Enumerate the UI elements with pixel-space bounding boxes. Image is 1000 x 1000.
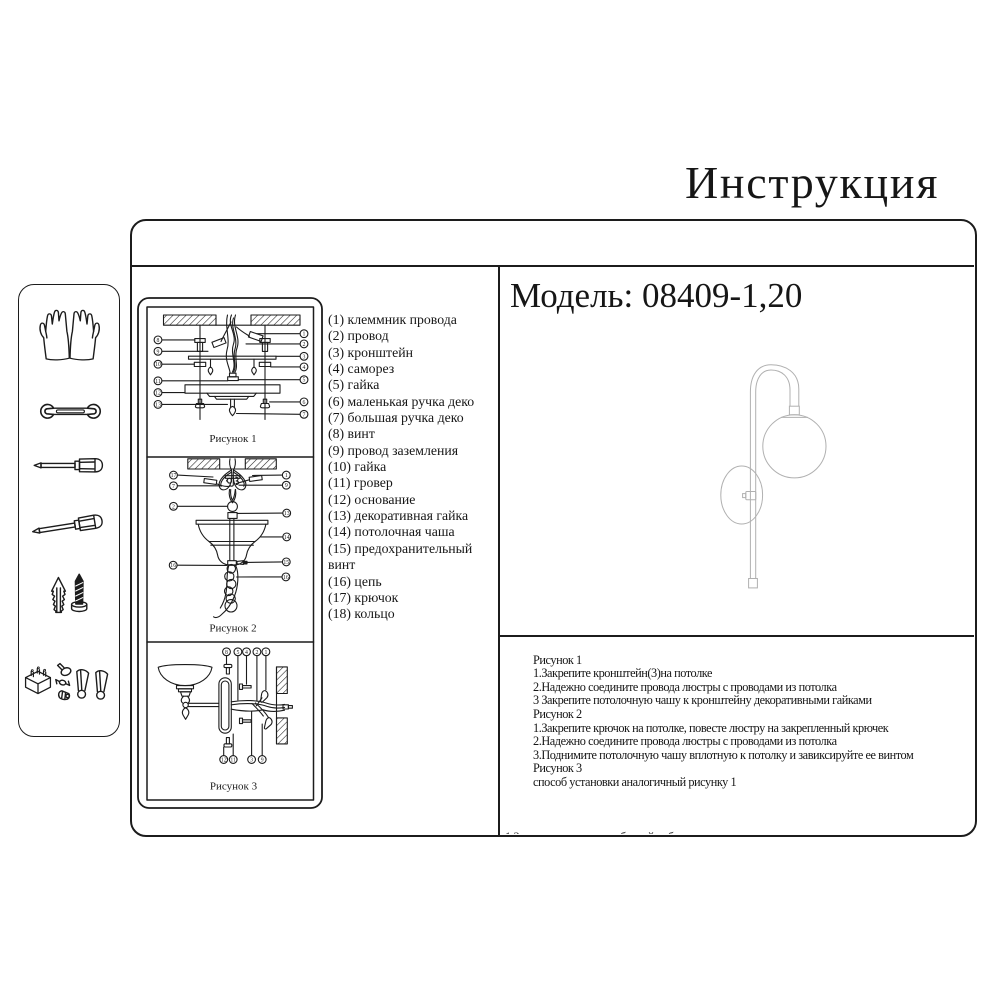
svg-text:5: 5	[303, 378, 306, 384]
svg-text:4: 4	[245, 650, 248, 656]
svg-text:14: 14	[284, 535, 290, 541]
svg-text:Рисунок 3: Рисунок 3	[210, 781, 258, 793]
svg-text:12: 12	[221, 758, 227, 764]
svg-text:Рисунок 1: Рисунок 1	[209, 433, 256, 445]
svg-text:7: 7	[172, 484, 175, 490]
svg-text:11: 11	[230, 758, 236, 764]
svg-text:2: 2	[255, 650, 258, 656]
svg-text:2: 2	[172, 504, 175, 510]
svg-text:9: 9	[261, 758, 264, 764]
svg-text:13: 13	[284, 511, 290, 517]
svg-text:3: 3	[303, 354, 306, 360]
svg-text:1: 1	[303, 332, 306, 338]
svg-text:Рисунок 2: Рисунок 2	[209, 623, 256, 635]
svg-text:16: 16	[170, 563, 176, 569]
svg-text:3: 3	[250, 758, 253, 764]
svg-text:4: 4	[303, 365, 306, 371]
svg-text:8: 8	[157, 338, 160, 344]
svg-text:9: 9	[157, 349, 160, 355]
svg-text:17: 17	[171, 473, 177, 479]
svg-text:16: 16	[283, 575, 289, 581]
svg-text:6: 6	[303, 400, 306, 406]
svg-text:9: 9	[285, 483, 288, 489]
svg-text:1: 1	[264, 650, 267, 656]
svg-text:13: 13	[155, 402, 161, 408]
svg-text:10: 10	[155, 362, 161, 368]
svg-text:11: 11	[155, 379, 161, 385]
svg-text:1: 1	[285, 473, 288, 479]
svg-text:12: 12	[155, 391, 161, 397]
svg-text:5: 5	[236, 650, 239, 656]
svg-text:15: 15	[283, 560, 289, 566]
svg-text:7: 7	[303, 412, 306, 418]
svg-text:8: 8	[225, 650, 228, 656]
svg-text:2: 2	[303, 342, 306, 348]
